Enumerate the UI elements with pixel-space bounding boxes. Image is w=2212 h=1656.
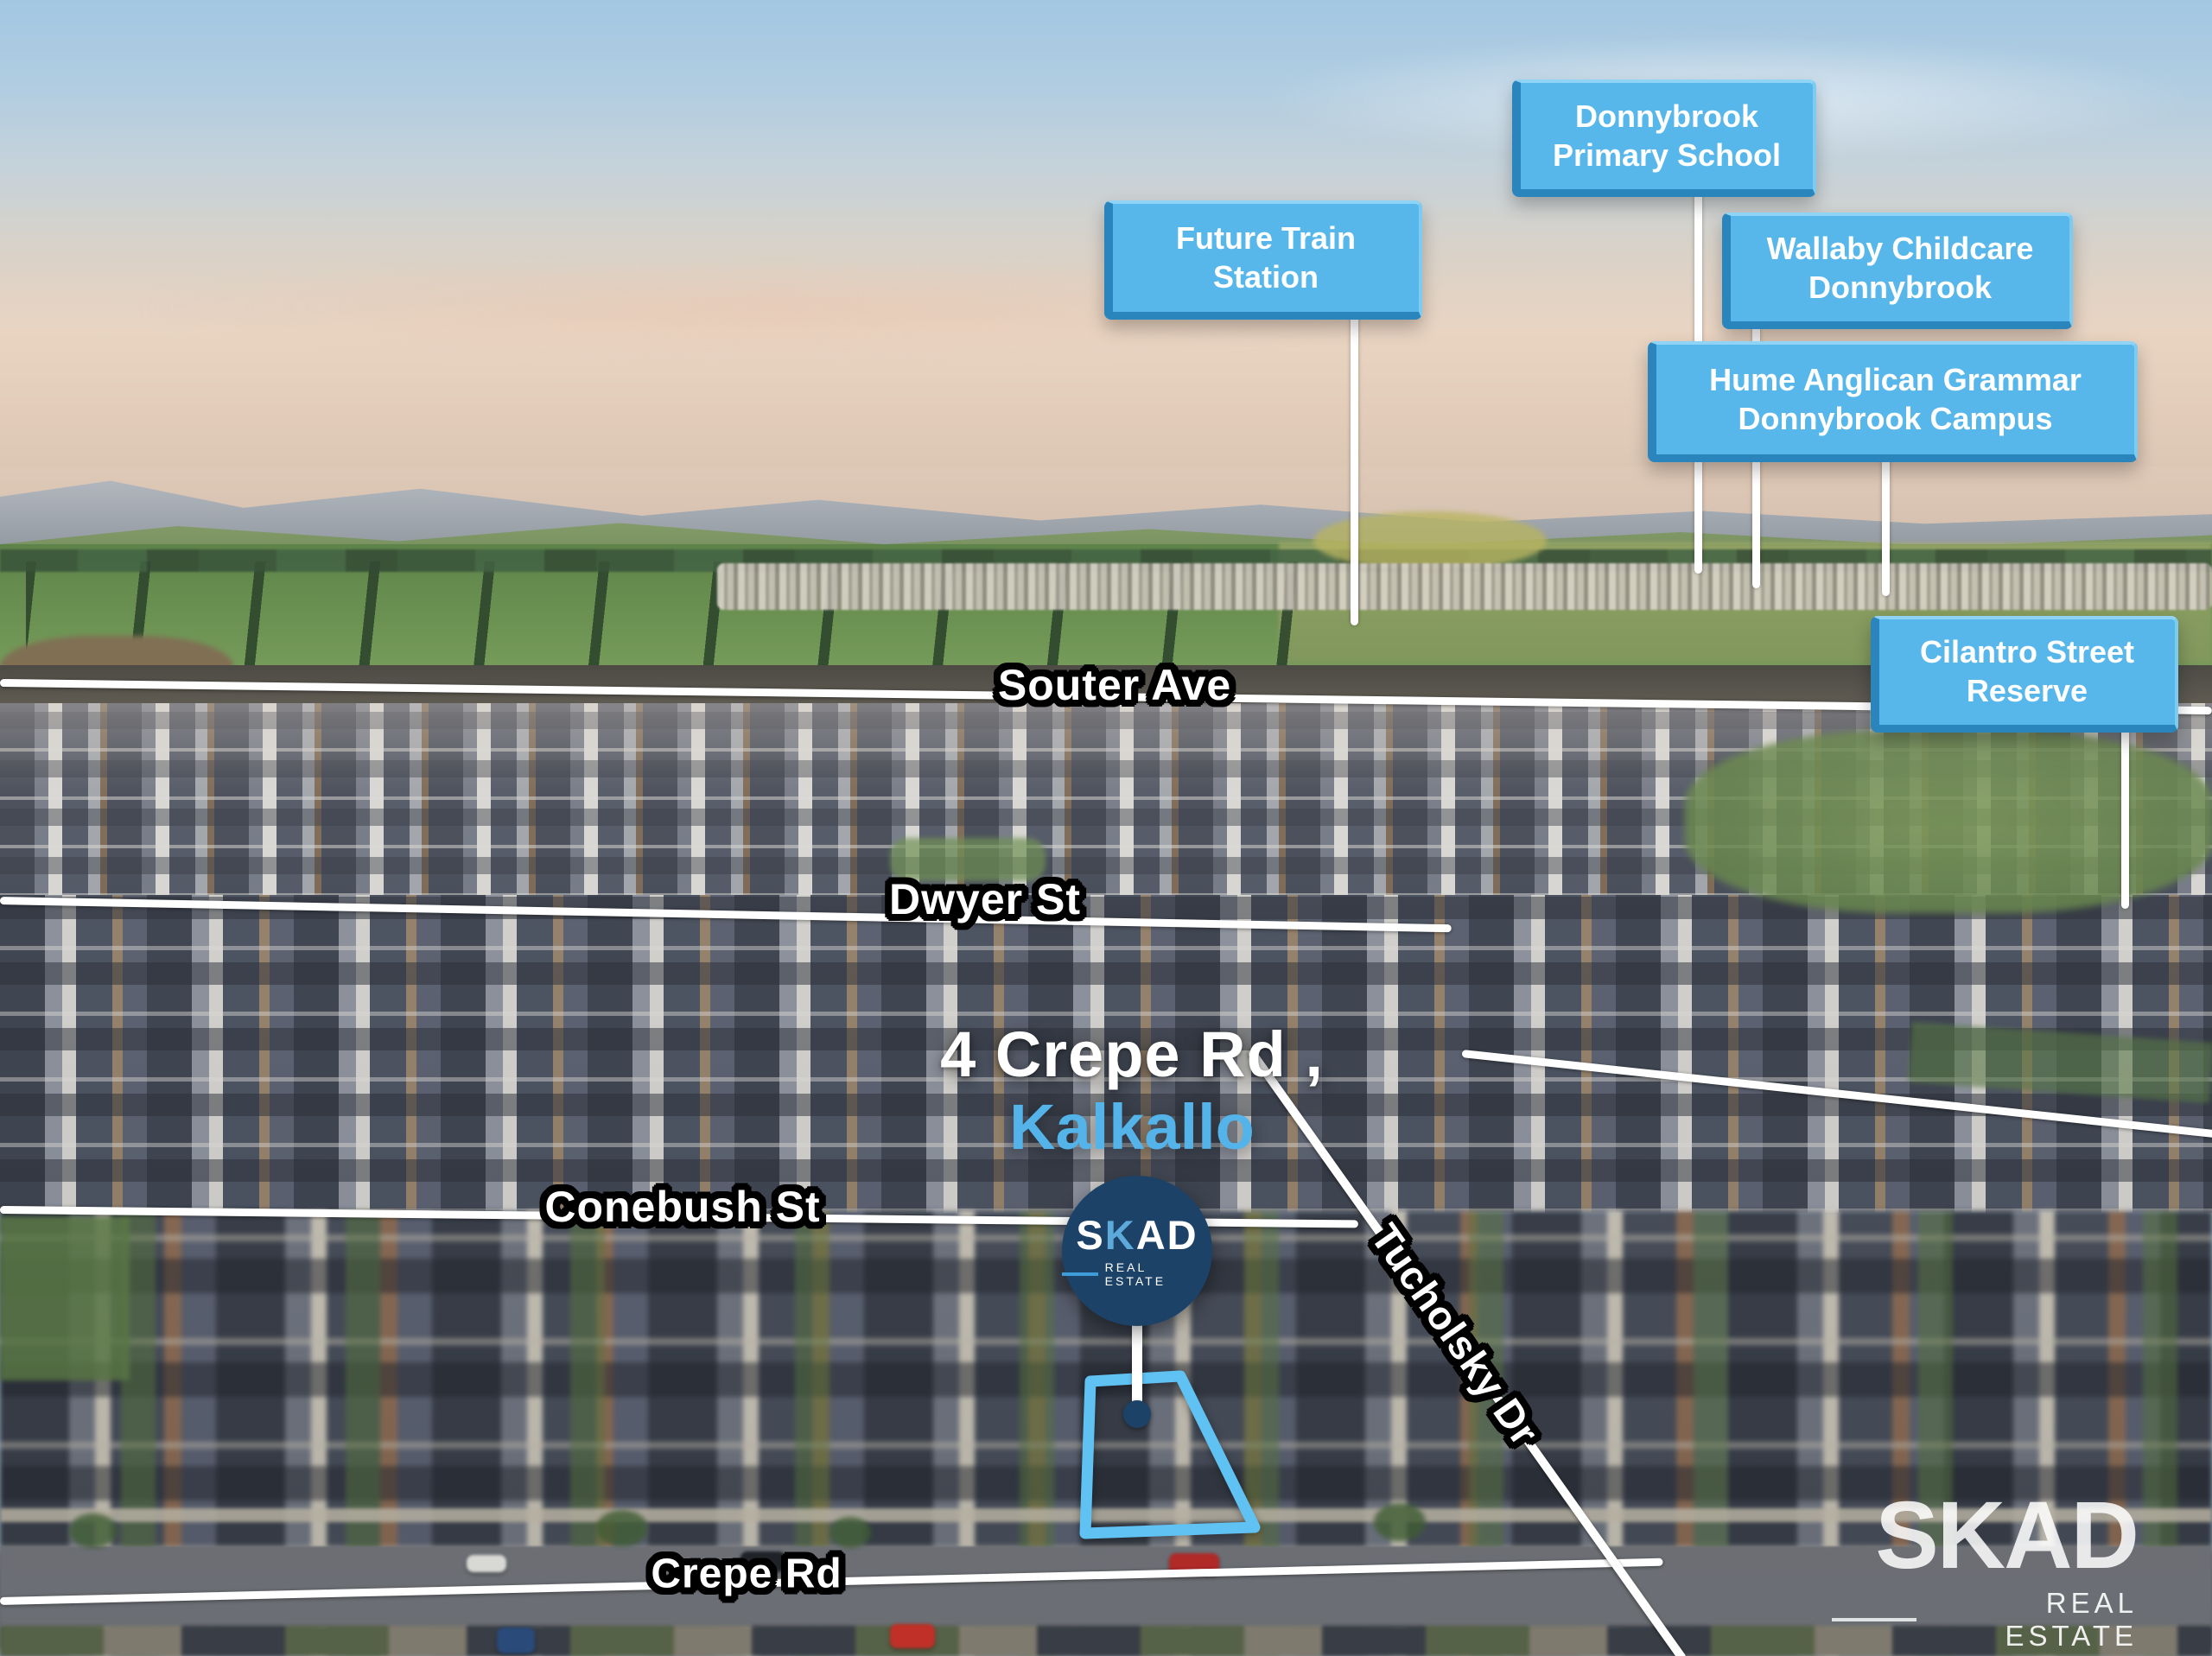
watermark-subrow: REAL ESTATE (1832, 1587, 2138, 1653)
address-line: 4 Crepe Rd , (940, 1021, 1324, 1088)
badge-accent-line (1062, 1272, 1098, 1276)
aerial-property-map: Souter Ave Dwyer St Conebush St Crepe Rd… (0, 0, 2212, 1656)
property-address-heading: 4 Crepe Rd , Kalkallo (940, 1021, 1324, 1160)
watermark-subtitle: REAL ESTATE (1929, 1587, 2138, 1653)
skad-brand-badge: SKAD REAL ESTATE (1062, 1176, 1212, 1326)
property-boundary-outline (0, 0, 2212, 1656)
badge-pointer-line (1132, 1320, 1142, 1410)
skad-watermark: SKAD REAL ESTATE (1832, 1491, 2177, 1653)
watermark-line (1832, 1618, 1916, 1621)
skad-badge-subtitle: REAL ESTATE (1105, 1260, 1212, 1288)
suburb-line: Kalkallo (940, 1094, 1324, 1161)
watermark-wordmark: SKAD (1832, 1491, 2138, 1582)
skad-badge-subrow: REAL ESTATE (1062, 1260, 1212, 1288)
skad-k-accent: K (1105, 1212, 1136, 1258)
property-marker-dot (1123, 1400, 1151, 1428)
skad-badge-wordmark: SKAD (1076, 1215, 1198, 1255)
